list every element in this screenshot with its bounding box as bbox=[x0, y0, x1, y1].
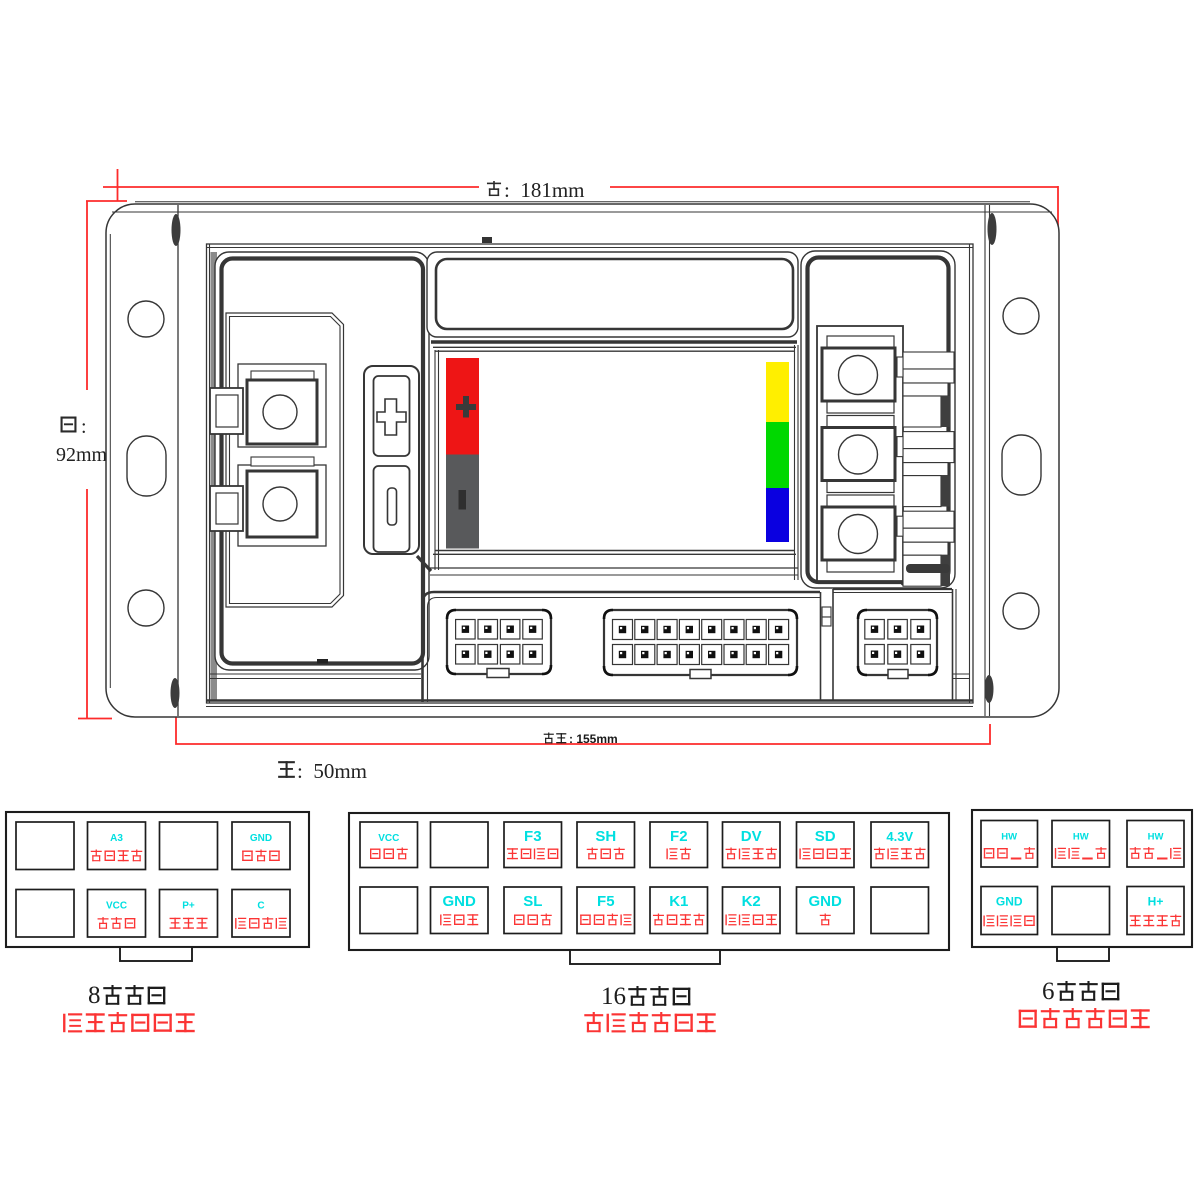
svg-text:K1: K1 bbox=[669, 893, 688, 910]
svg-text:SH: SH bbox=[595, 828, 616, 845]
svg-text:K2: K2 bbox=[742, 893, 761, 910]
svg-text:P+: P+ bbox=[182, 901, 195, 912]
svg-text:GND: GND bbox=[809, 893, 843, 910]
svg-text:HW: HW bbox=[1148, 832, 1164, 843]
svg-text:92mm: 92mm bbox=[56, 444, 108, 466]
svg-text:GND: GND bbox=[996, 895, 1023, 909]
svg-text:: 155mm: : 155mm bbox=[569, 732, 618, 746]
svg-text:8: 8 bbox=[88, 982, 101, 1009]
svg-text:SD: SD bbox=[815, 828, 836, 845]
svg-text:GND: GND bbox=[250, 833, 272, 844]
svg-text:F3: F3 bbox=[524, 828, 542, 845]
svg-text:GND: GND bbox=[443, 893, 477, 910]
svg-text:: 181mm: : 181mm bbox=[504, 178, 585, 202]
svg-text:A3: A3 bbox=[110, 833, 123, 844]
svg-text:HW: HW bbox=[1001, 832, 1017, 843]
svg-text:C: C bbox=[257, 901, 264, 912]
svg-text:: 50mm: : 50mm bbox=[297, 759, 367, 783]
svg-text:DV: DV bbox=[741, 828, 762, 845]
svg-text:F2: F2 bbox=[670, 828, 688, 845]
svg-text:6: 6 bbox=[1042, 978, 1055, 1005]
svg-text:VCC: VCC bbox=[378, 833, 399, 844]
svg-text:16: 16 bbox=[601, 983, 626, 1010]
svg-text:4.3V: 4.3V bbox=[886, 829, 913, 844]
svg-text::: : bbox=[81, 416, 87, 438]
svg-text:HW: HW bbox=[1073, 832, 1089, 843]
svg-text:F5: F5 bbox=[597, 893, 615, 910]
svg-text:SL: SL bbox=[523, 893, 542, 910]
svg-text:VCC: VCC bbox=[106, 901, 127, 912]
svg-text:H+: H+ bbox=[1148, 895, 1164, 909]
